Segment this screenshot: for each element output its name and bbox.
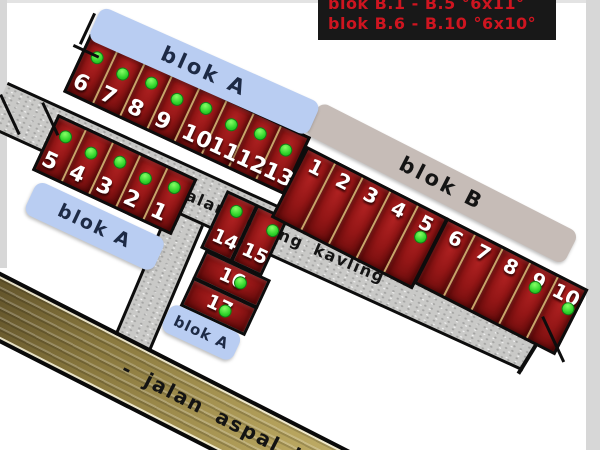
status-dot-icon xyxy=(168,91,185,108)
plot-number: 1 xyxy=(146,198,170,227)
plot-number: 7 xyxy=(96,81,120,110)
plot-number: 2 xyxy=(119,185,143,214)
plot-number: 15 xyxy=(238,238,271,269)
legend-line-1: blok B.1 - B.5 °6x11° xyxy=(328,0,556,14)
status-dot-icon xyxy=(264,222,281,239)
plot-number: 4 xyxy=(65,160,89,189)
status-dot-icon xyxy=(137,170,154,187)
status-dot-icon xyxy=(223,116,240,133)
kavling-site-map: - jalan paving kavling - jalan aspal kam… xyxy=(0,0,600,450)
status-dot-icon xyxy=(57,128,74,145)
status-dot-icon xyxy=(143,74,160,91)
plot-number: 6 xyxy=(69,69,93,98)
status-dot-icon xyxy=(227,203,244,220)
plot-number: 3 xyxy=(92,172,116,201)
status-dot-icon xyxy=(277,141,294,158)
plot-number: 8 xyxy=(123,94,147,123)
legend-line-2: blok B.6 - B.10 °6x10° xyxy=(328,14,556,34)
page-edge-right xyxy=(586,0,600,450)
status-dot-icon xyxy=(114,65,131,82)
aspal-road-label: - jalan aspal kampung xyxy=(112,345,553,450)
plot-number: 5 xyxy=(38,147,62,176)
status-dot-icon xyxy=(82,144,99,161)
plot-number: 9 xyxy=(150,107,174,136)
status-dot-icon xyxy=(197,100,214,117)
legend-box: blok B.1 - B.5 °6x11° blok B.6 - B.10 °6… xyxy=(318,0,556,40)
status-dot-icon xyxy=(252,125,269,142)
status-dot-icon xyxy=(166,179,183,196)
status-dot-icon xyxy=(111,154,128,171)
